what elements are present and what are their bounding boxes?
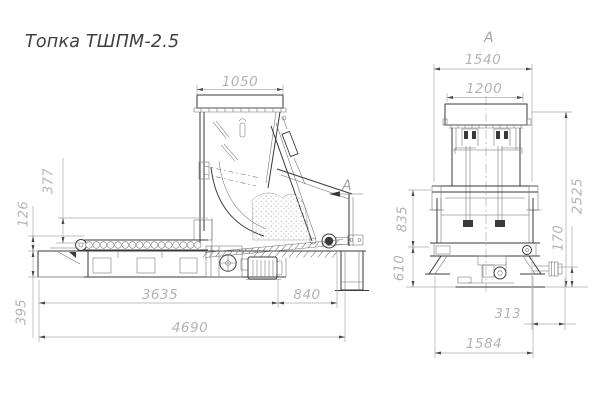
dim-upper-height: 835 — [396, 206, 411, 232]
dim-hopper-top-width: 1050 — [222, 74, 258, 90]
dim-overall-length: 4690 — [172, 320, 208, 336]
dim-base-width: 1584 — [466, 336, 502, 352]
dim-hopper-width: 1200 — [466, 81, 502, 97]
scraper-chain — [76, 240, 209, 251]
section-label: А — [341, 178, 352, 194]
technical-drawing-page: Топка ТШПМ-2.5 — [0, 0, 600, 400]
dim-overall-height: 2525 — [570, 178, 586, 214]
motor-ribs — [253, 260, 273, 277]
hopper-flange-ticks — [201, 108, 281, 112]
support-frame — [429, 186, 541, 210]
dim-discharge-overhang: 840 — [293, 287, 320, 303]
electric-motor — [241, 257, 282, 280]
view-label: А — [483, 30, 494, 46]
front-hopper — [443, 104, 531, 227]
left-ash-box — [38, 248, 88, 277]
chain-links — [86, 242, 201, 249]
right-view-front-elevation: А — [393, 30, 589, 358]
right-view-dimensions: 1540 1200 835 610 2525 170 313 — [393, 52, 589, 358]
technical-drawing: Топка ТШПМ-2.5 — [0, 0, 600, 400]
discharge-sprocket — [310, 234, 363, 248]
hopper — [194, 95, 353, 251]
conveyor-trough — [88, 251, 286, 277]
view-direction-arrow: А — [329, 178, 363, 197]
dim-conveyor-length: 3635 — [142, 287, 178, 303]
dim-pit-depth: 395 — [15, 299, 30, 325]
dim-feed-throat-height: 377 — [42, 168, 57, 195]
fuel-pile-stipple — [252, 193, 310, 240]
dim-frame-width: 1540 — [465, 52, 501, 68]
dim-shaft-offset: 313 — [495, 307, 521, 322]
left-view-side-elevation: А — [15, 74, 370, 342]
furnace-body — [430, 198, 540, 256]
level-sensor-icon — [239, 119, 246, 137]
dim-lower-height: 610 — [393, 255, 408, 281]
dim-front-ledge-height: 126 — [17, 201, 32, 227]
dim-shaft-axis-height: 170 — [552, 225, 567, 251]
page-title: Топка ТШПМ-2.5 — [25, 32, 179, 52]
discharge-support-column — [335, 251, 369, 291]
